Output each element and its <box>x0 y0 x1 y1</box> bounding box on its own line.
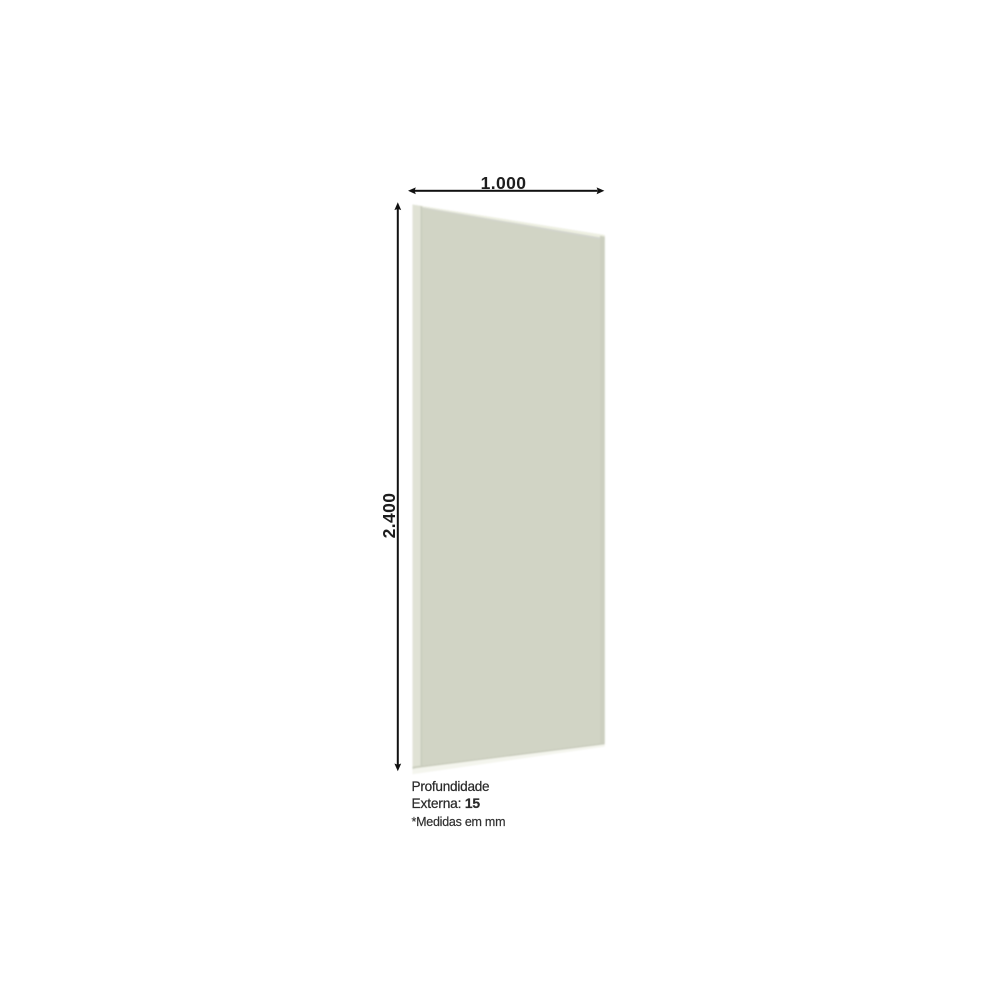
svg-text:1.000: 1.000 <box>481 173 527 193</box>
svg-text:Externa: 15: Externa: 15 <box>412 796 481 811</box>
svg-text:2.400: 2.400 <box>379 493 399 539</box>
svg-text:*Medidas em mm: *Medidas em mm <box>412 815 506 829</box>
svg-text:Profundidade: Profundidade <box>412 779 490 794</box>
